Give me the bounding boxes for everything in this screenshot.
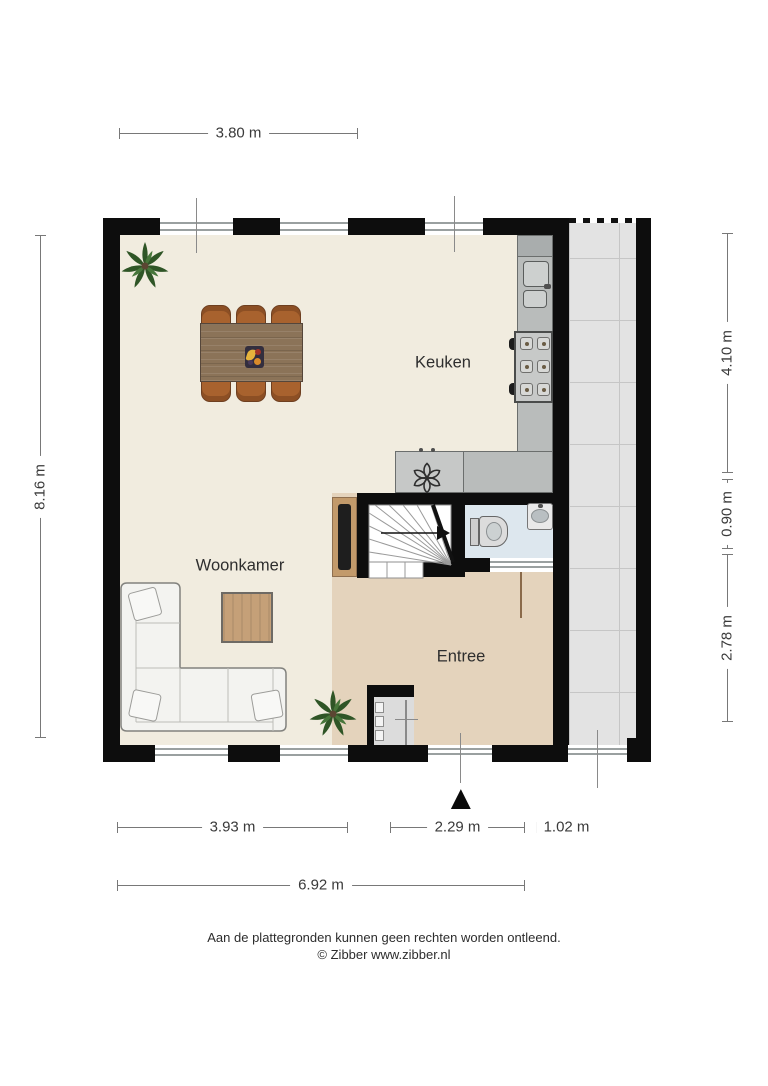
room-label-living: Woonkamer	[196, 557, 285, 576]
dimension-right-1: 4.10 m	[720, 233, 734, 473]
dimension-left: 8.16 m	[33, 235, 47, 738]
meter-cupboard-door-swing	[395, 719, 418, 720]
window	[155, 745, 228, 762]
wall-segment	[228, 745, 280, 762]
stove	[514, 331, 553, 403]
wc-door-leaf	[520, 572, 522, 618]
sofa-cushion	[251, 690, 283, 721]
wall-segment	[348, 745, 428, 762]
counter-detail	[431, 448, 435, 452]
wall-segment	[348, 218, 425, 235]
plant-icon	[308, 688, 358, 740]
dimension-bottom-2: 2.29 m	[390, 820, 525, 834]
counter-detail	[419, 448, 423, 452]
wall-segment	[483, 218, 569, 235]
footer-disclaimer: Aan de plattegronden kunnen geen rechten…	[0, 930, 768, 945]
room-label-kitchen: Keuken	[415, 354, 471, 373]
toilet-bowl	[486, 522, 502, 541]
wall-segment	[103, 745, 155, 762]
wall-segment	[627, 738, 651, 762]
stove-knob	[509, 383, 514, 395]
wall-segment	[553, 235, 569, 745]
wall-segment	[636, 218, 651, 762]
window	[280, 745, 348, 762]
dimension-right-3: 2.78 m	[720, 554, 734, 722]
stove-knob	[509, 338, 514, 350]
room-label-entry: Entree	[437, 648, 486, 667]
meter-box	[375, 730, 384, 741]
plant-icon	[120, 240, 170, 292]
staircase	[357, 493, 469, 583]
dimension-bottom-1: 3.93 m	[117, 820, 348, 834]
window-center-marker	[454, 196, 455, 252]
coffee-table	[221, 592, 273, 643]
meter-box	[375, 702, 384, 713]
dimension-bottom-3: 1.02 m	[536, 820, 597, 834]
toilet	[470, 518, 479, 546]
window-center-marker	[196, 198, 197, 253]
wall-segment	[367, 697, 374, 745]
wall-segment	[367, 685, 414, 697]
gate-marker-line	[597, 730, 598, 788]
terrace-tiles	[569, 223, 636, 745]
kitchen-sink	[523, 290, 547, 308]
floorplan-page: Keuken Woonkamer Entree ▲ 3.80 m 8.16 m …	[0, 0, 768, 1086]
wall-segment	[492, 745, 568, 762]
faucet-icon	[544, 284, 551, 289]
dimension-right-2: 0.90 m	[720, 479, 734, 549]
tv	[338, 504, 351, 570]
faucet-icon	[538, 504, 543, 508]
dimension-top: 3.80 m	[119, 126, 358, 140]
open-boundary-dashed	[569, 218, 636, 223]
meter-box	[375, 716, 384, 727]
entrance-marker-line	[460, 733, 461, 783]
entrance-arrow-icon: ▲	[444, 781, 478, 815]
meter-cupboard-door	[405, 700, 407, 745]
window	[280, 218, 348, 235]
wall-segment	[233, 218, 280, 235]
fruit-bowl	[245, 346, 264, 368]
footer-copyright: © Zibber www.zibber.nl	[0, 947, 768, 962]
ventilation-fan-icon	[409, 460, 445, 496]
wash-basin-bowl	[531, 509, 549, 523]
sofa-cushion	[128, 689, 161, 721]
dimension-bottom-total: 6.92 m	[117, 878, 525, 892]
kitchen-counter	[463, 451, 553, 493]
kitchen-counter	[517, 235, 553, 257]
wc-door	[490, 558, 553, 572]
